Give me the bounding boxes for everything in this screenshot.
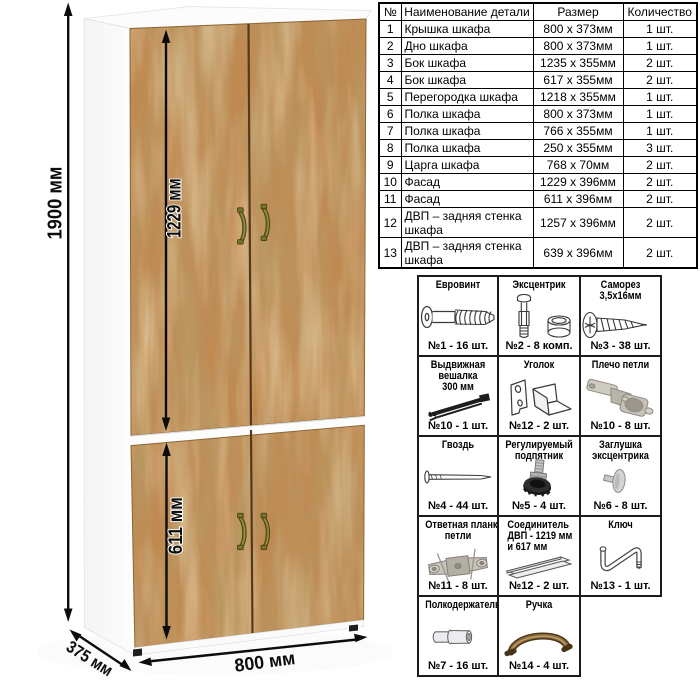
svg-text:611 мм: 611 мм [166, 497, 187, 554]
svg-text:1229 мм: 1229 мм [165, 178, 186, 238]
svg-text:1900 мм: 1900 мм [44, 167, 66, 240]
